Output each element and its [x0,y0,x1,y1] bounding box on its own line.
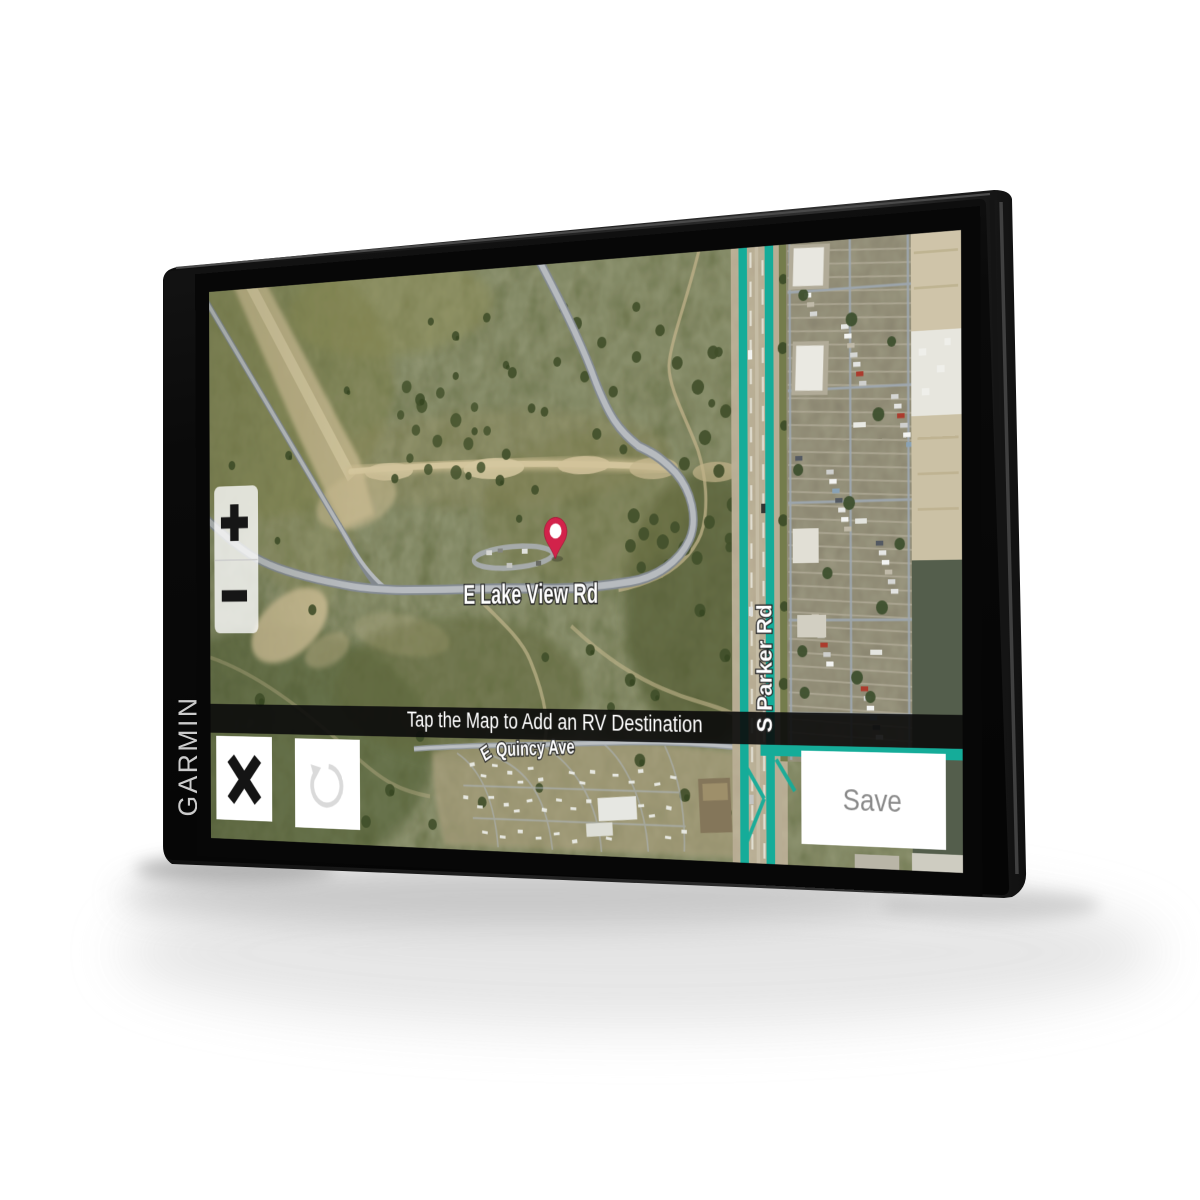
svg-text:S Parker Rd: S Parker Rd [753,604,777,733]
svg-text:E Lake View Rd: E Lake View Rd [463,579,598,610]
svg-text:Save: Save [843,782,902,819]
svg-text:Quincy Ave: Quincy Ave [496,736,575,761]
